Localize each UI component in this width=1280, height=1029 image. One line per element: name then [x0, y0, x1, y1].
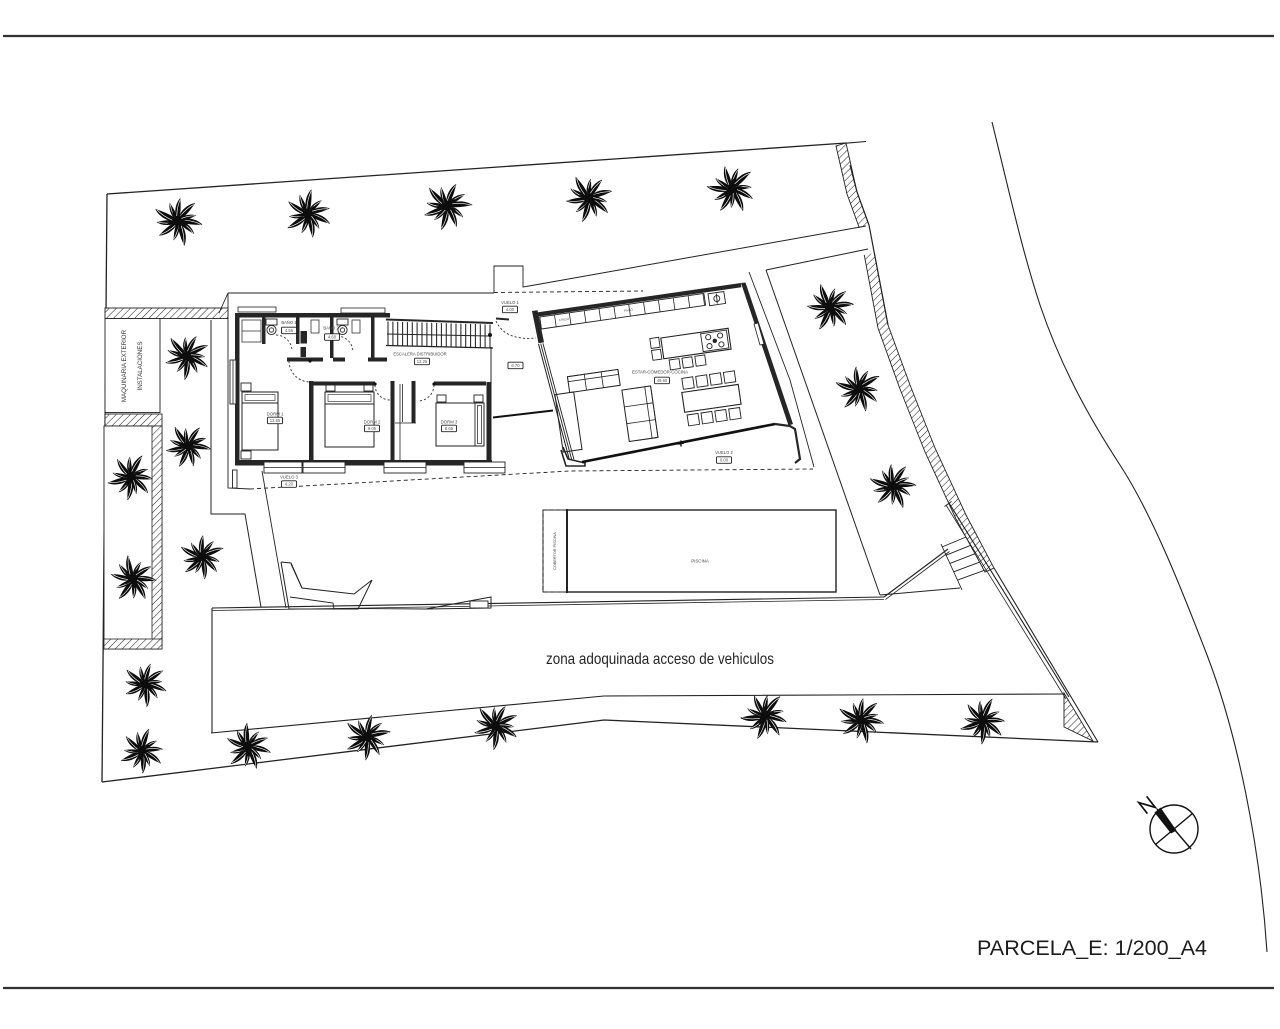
svg-text:VUELO 3: VUELO 3: [280, 475, 298, 480]
svg-text:BAÑO 1: BAÑO 1: [281, 320, 297, 325]
svg-text:VUELO 2: VUELO 2: [715, 450, 733, 455]
svg-text:9.05: 9.05: [368, 426, 377, 431]
svg-text:ESCALERA DISTRIBUIDOR: ESCALERA DISTRIBUIDOR: [393, 352, 446, 357]
svg-text:DORM 2: DORM 2: [364, 420, 381, 425]
svg-text:VUELO 1: VUELO 1: [501, 300, 519, 305]
svg-text:4.55: 4.55: [285, 328, 294, 333]
svg-text:4.60: 4.60: [328, 335, 337, 340]
svg-text:zona adoquinada acceso de vehi: zona adoquinada acceso de vehiculos: [546, 651, 774, 668]
svg-text:MAQUINARIA EXTERIOR: MAQUINARIA EXTERIOR: [121, 329, 128, 402]
svg-text:DORM 1: DORM 1: [267, 412, 284, 417]
svg-text:6.70: 6.70: [511, 363, 520, 368]
svg-text:PARCELA_E: 1/200_A4: PARCELA_E: 1/200_A4: [977, 936, 1207, 960]
svg-text:ESTAR-COMEDOR-COCINA: ESTAR-COMEDOR-COCINA: [632, 370, 688, 375]
svg-text:INSTALACIONES: INSTALACIONES: [137, 341, 144, 390]
svg-text:4.00: 4.00: [506, 307, 515, 312]
svg-text:13.25: 13.25: [417, 359, 428, 364]
svg-text:COBERTOR PISCINA: COBERTOR PISCINA: [553, 532, 557, 570]
svg-text:13.65: 13.65: [270, 418, 281, 423]
svg-text:BAÑO 2: BAÑO 2: [323, 326, 339, 331]
svg-text:8.65: 8.65: [445, 426, 454, 431]
svg-text:4.20: 4.20: [285, 482, 294, 487]
svg-text:49.60: 49.60: [657, 378, 668, 383]
svg-text:PISCINA: PISCINA: [691, 559, 709, 564]
svg-text:0.00: 0.00: [720, 458, 729, 463]
svg-text:DORM 3: DORM 3: [441, 420, 458, 425]
